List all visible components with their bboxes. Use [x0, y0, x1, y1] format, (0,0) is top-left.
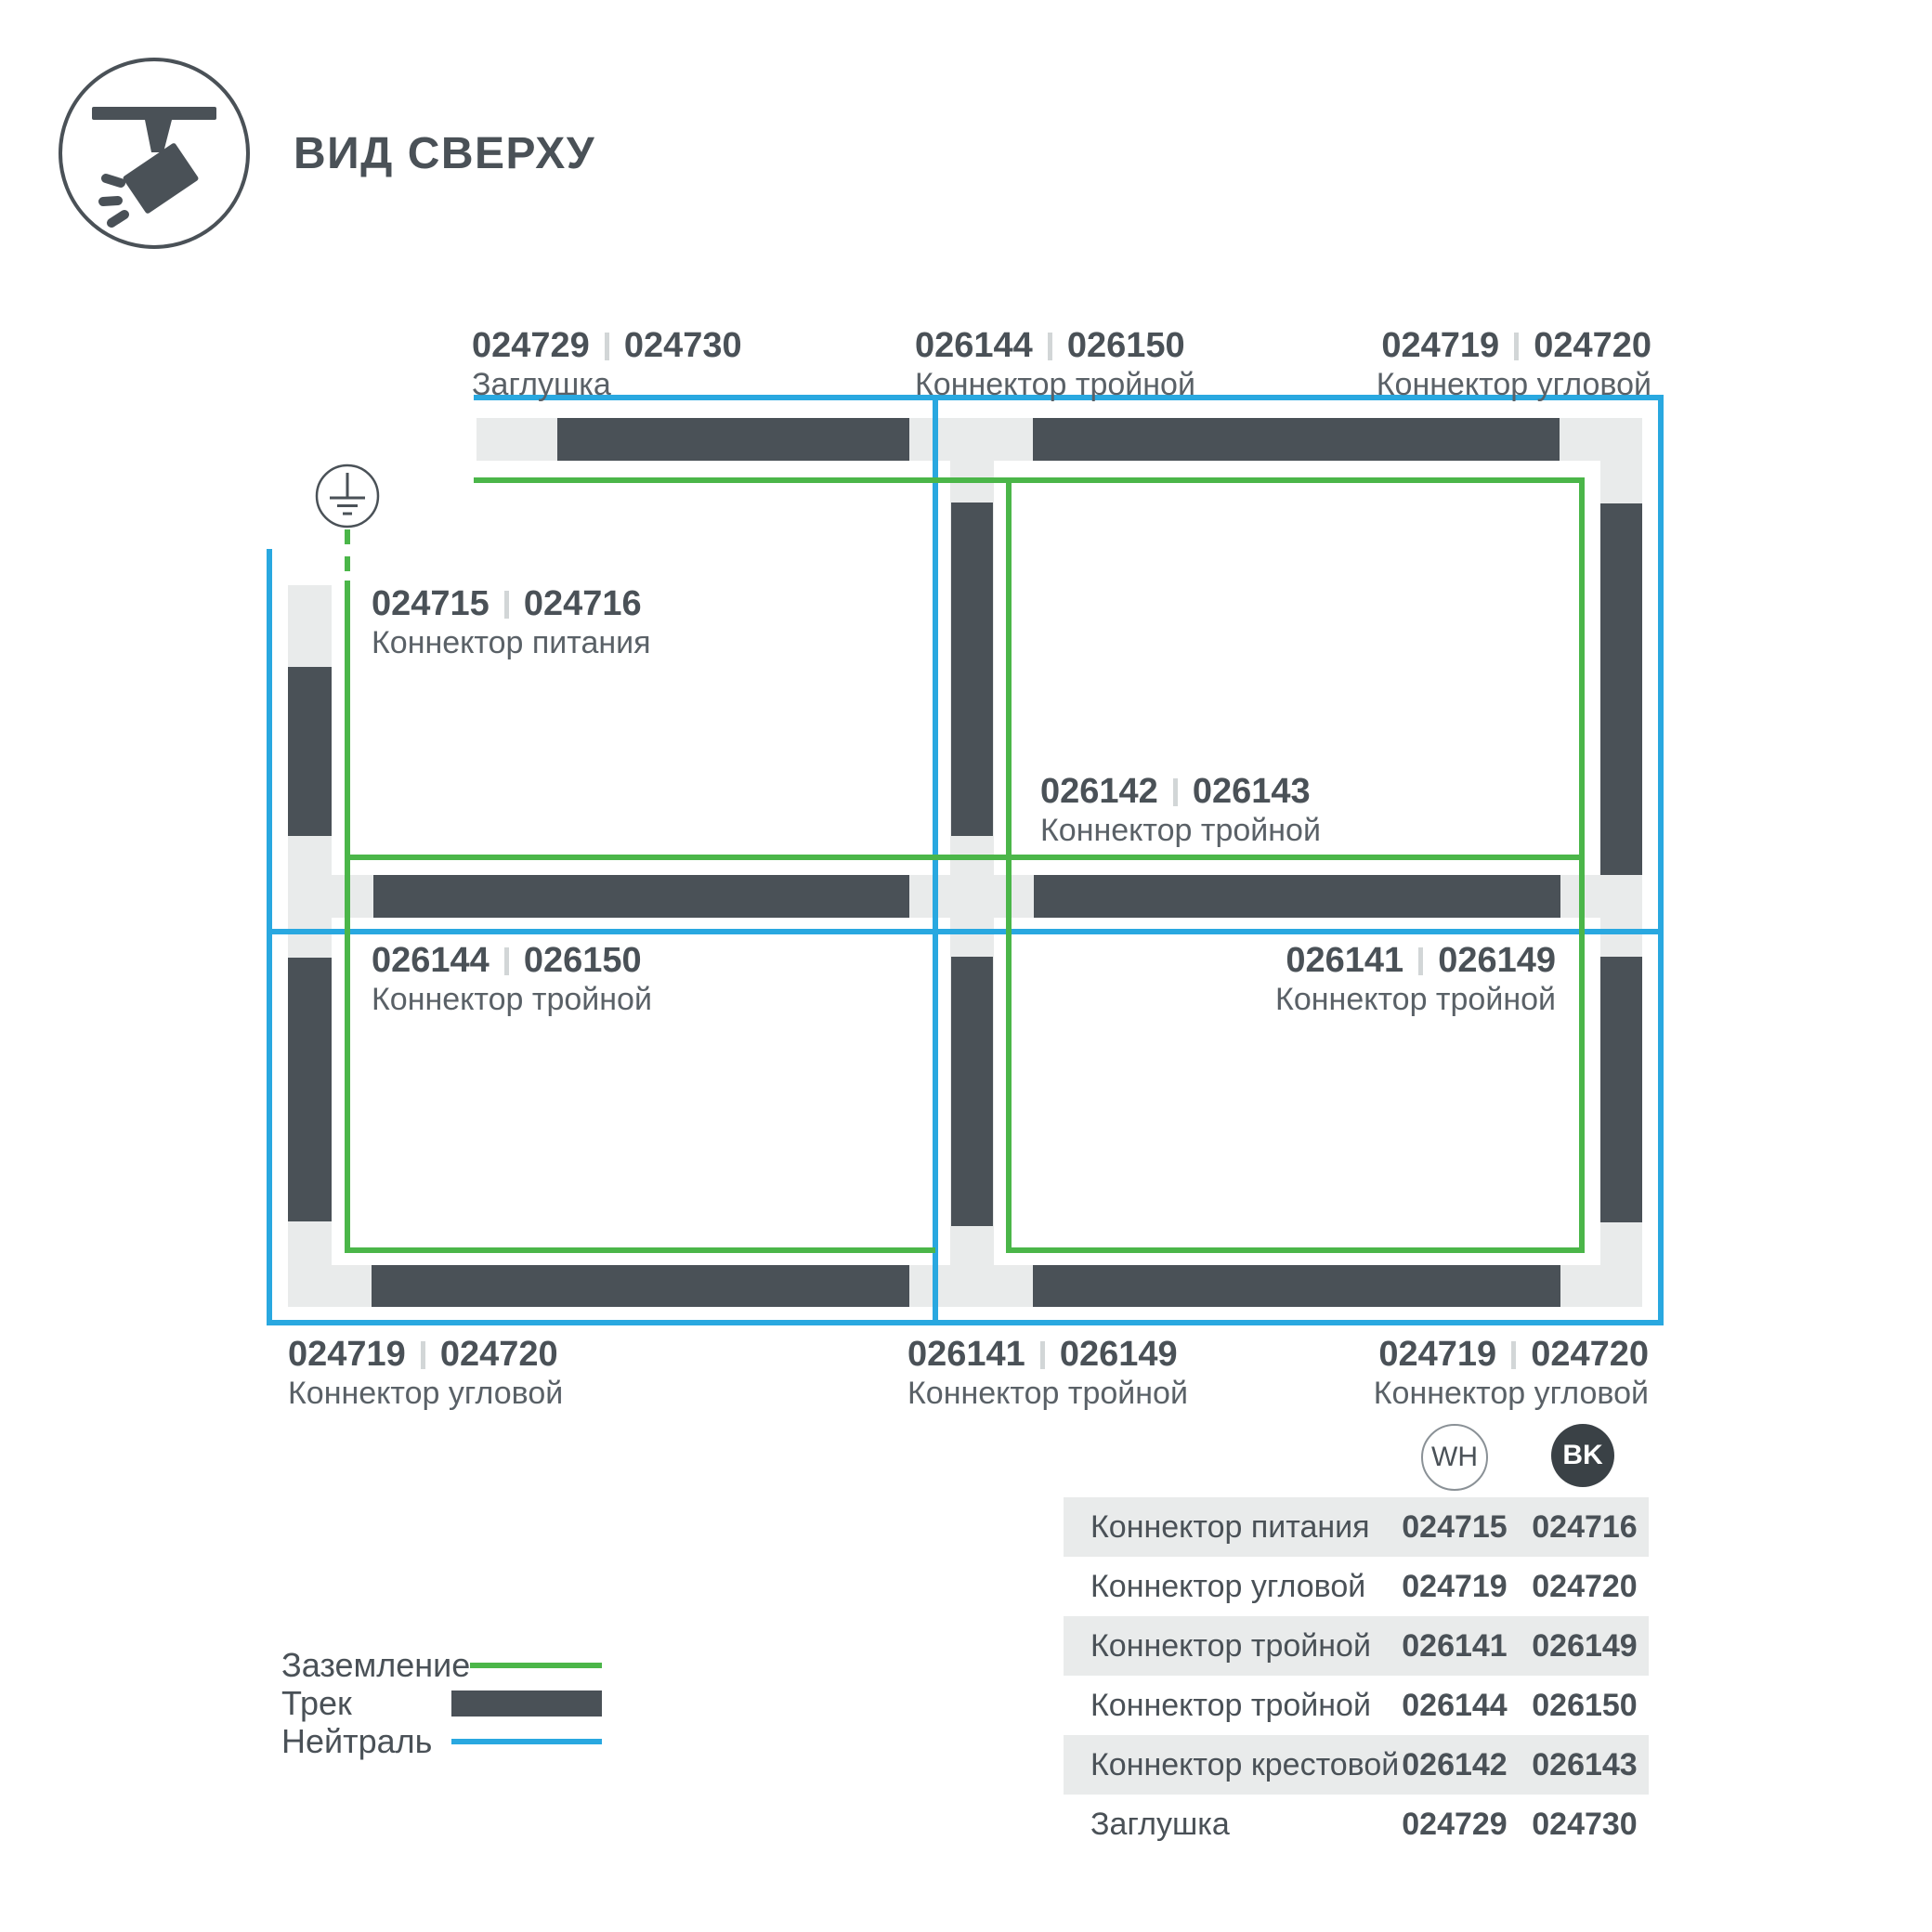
color-badge-white: WH	[1421, 1424, 1488, 1491]
track-segment	[951, 503, 993, 836]
legend-item-track: Трек	[281, 1684, 602, 1723]
ground-line-right	[1579, 477, 1585, 1253]
page-title: ВИД СВЕРХУ	[294, 128, 595, 179]
track-segment	[1033, 418, 1560, 461]
label-corner-connector-bottom-right: 024719024720 Коннектор угловой	[1374, 1334, 1649, 1412]
table-row: Коннектор тройной 026144 026150	[1064, 1676, 1649, 1735]
ground-line-center-vertical	[1006, 477, 1012, 1253]
track-segment	[372, 1265, 909, 1307]
neutral-line-center-horizontal	[267, 929, 1664, 934]
label-power-connector: 024715024716 Коннектор питания	[372, 583, 651, 661]
track-segment	[1034, 875, 1560, 918]
neutral-line-swatch	[451, 1739, 602, 1744]
ground-line-bottom-right	[1006, 1247, 1585, 1253]
label-separator	[504, 591, 509, 619]
label-separator	[1511, 1341, 1516, 1369]
ground-line-bottom-left	[345, 1247, 935, 1253]
label-separator	[1048, 333, 1052, 360]
track-segment	[1600, 503, 1642, 875]
ground-line-dashed	[345, 529, 350, 581]
label-triple-connector-top: 026144026150 Коннектор тройной	[915, 325, 1195, 403]
label-separator	[605, 333, 609, 360]
ground-line-left	[345, 581, 350, 1253]
track-segment	[951, 957, 993, 1226]
label-triple-connector-left: 026144026150 Коннектор тройной	[372, 940, 652, 1018]
color-badge-black: BK	[1551, 1424, 1614, 1487]
table-row: Коннектор крестовой 026142 026143	[1064, 1735, 1649, 1795]
label-corner-connector-bottom-left: 024719024720 Коннектор угловой	[288, 1334, 563, 1412]
ground-line-mid-horizontal	[345, 855, 1585, 860]
ground-line-top	[474, 477, 1585, 483]
label-separator	[1514, 333, 1519, 360]
track-segment	[1600, 957, 1642, 1222]
label-separator	[1040, 1341, 1045, 1369]
track-segment	[288, 958, 332, 1221]
neutral-line-center-vertical	[933, 395, 938, 1325]
label-separator	[421, 1341, 425, 1369]
track-segment	[288, 667, 332, 836]
track-segment	[557, 418, 909, 461]
label-separator	[1418, 947, 1423, 975]
neutral-line-bottom	[267, 1320, 1664, 1325]
ground-icon	[314, 463, 381, 529]
track-segment	[1033, 1265, 1560, 1307]
neutral-line-left	[267, 549, 272, 1325]
neutral-line-right	[1658, 395, 1664, 1325]
table-row: Коннектор угловой 024719 024720	[1064, 1557, 1649, 1616]
ground-line-swatch	[470, 1663, 602, 1668]
table-row: Заглушка 024729 024730	[1064, 1795, 1649, 1854]
label-corner-connector-top-right: 024719024720 Коннектор угловой	[1377, 325, 1651, 403]
track-light-icon	[57, 56, 252, 251]
label-separator	[504, 947, 509, 975]
label-cross-connector: 026142026143 Коннектор тройной	[1040, 771, 1321, 849]
legend-item-neutral: Нейтраль	[281, 1722, 602, 1761]
legend-item-ground: Заземление	[281, 1646, 602, 1685]
label-separator	[1173, 778, 1178, 806]
table-row: Коннектор питания 024715 024716	[1064, 1497, 1649, 1557]
table-row: Коннектор тройной 026141 026149	[1064, 1616, 1649, 1676]
track-segment	[373, 875, 909, 918]
label-endcap-top: 024729024730 Заглушка	[472, 325, 742, 403]
label-triple-connector-bottom: 026141026149 Коннектор тройной	[907, 1334, 1188, 1412]
label-triple-connector-right: 026141026149 Коннектор тройной	[1275, 940, 1556, 1018]
track-bar-swatch	[451, 1690, 602, 1717]
